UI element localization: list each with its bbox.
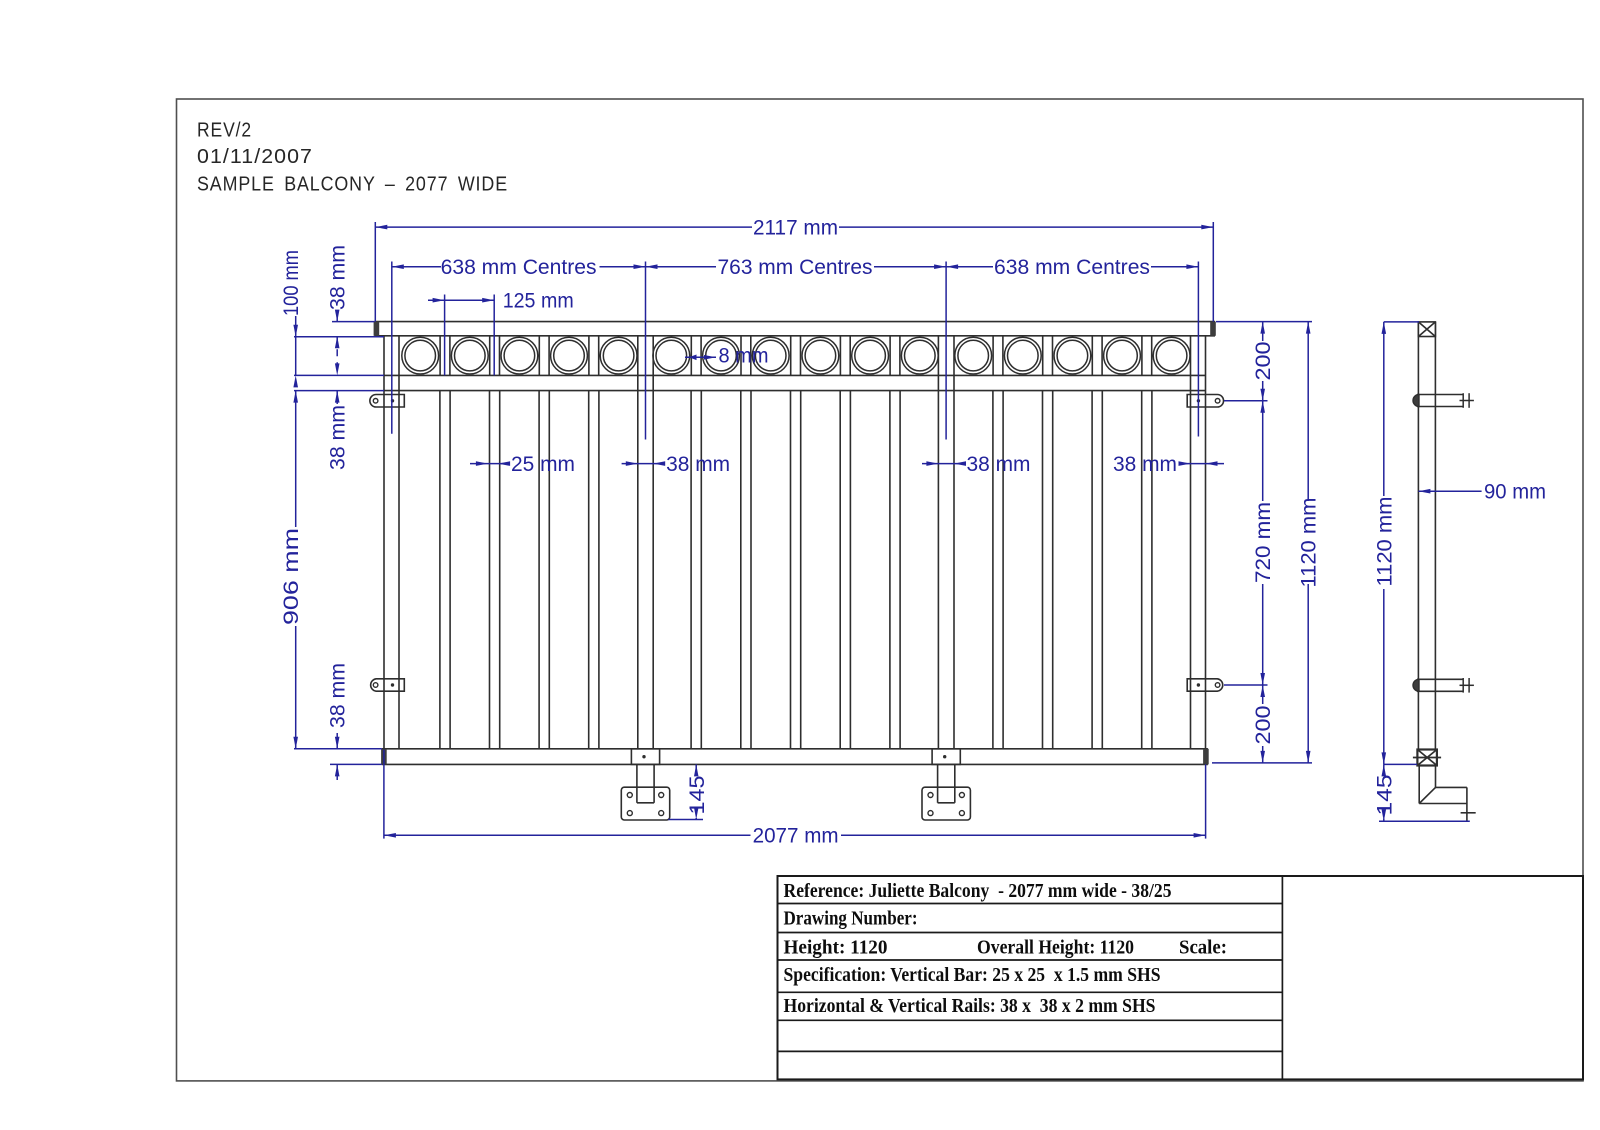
svg-text:Drawing Number:: Drawing Number: xyxy=(784,908,918,930)
svg-text:8 mm: 8 mm xyxy=(719,345,769,368)
svg-text:38 mm: 38 mm xyxy=(327,405,350,470)
svg-text:100 mm: 100 mm xyxy=(280,250,303,316)
svg-text:638 mm Centres: 638 mm Centres xyxy=(441,256,597,279)
svg-text:Specification: Vertical Bar: 2: Specification: Vertical Bar: 25 x 25 x 1… xyxy=(784,964,1161,986)
svg-text:90 mm: 90 mm xyxy=(1484,480,1546,503)
svg-text:763 mm Centres: 763 mm Centres xyxy=(718,256,873,279)
svg-text:01/11/2007: 01/11/2007 xyxy=(197,146,313,168)
svg-text:638 mm Centres: 638 mm Centres xyxy=(994,256,1150,279)
svg-text:38 mm: 38 mm xyxy=(1113,453,1177,476)
svg-text:125 mm: 125 mm xyxy=(503,289,574,312)
svg-text:Height: 1120: Height: 1120 xyxy=(784,937,888,959)
svg-text:Horizontal & Vertical Rails: 3: Horizontal & Vertical Rails: 38 x 38 x 2… xyxy=(784,995,1156,1017)
svg-text:38 mm: 38 mm xyxy=(327,245,350,310)
svg-text:2077 mm: 2077 mm xyxy=(753,825,839,848)
svg-text:200: 200 xyxy=(1252,342,1275,381)
svg-text:Overall Height: 1120: Overall Height: 1120 xyxy=(977,937,1134,959)
svg-text:1120 mm: 1120 mm xyxy=(1373,497,1396,587)
svg-text:1120 mm: 1120 mm xyxy=(1298,498,1321,588)
svg-text:2117 mm: 2117 mm xyxy=(753,216,838,239)
svg-text:25 mm: 25 mm xyxy=(511,453,575,476)
svg-text:720 mm: 720 mm xyxy=(1252,502,1275,583)
svg-text:Reference: Juliette Balcony -: Reference: Juliette Balcony - 2077 mm wi… xyxy=(784,880,1172,902)
svg-text:SAMPLE BALCONY – 2077 WIDE: SAMPLE BALCONY – 2077 WIDE xyxy=(197,174,508,196)
svg-text:38 mm: 38 mm xyxy=(967,453,1031,476)
svg-text:REV/2: REV/2 xyxy=(197,120,252,142)
svg-text:Scale:: Scale: xyxy=(1179,937,1227,959)
svg-text:38 mm: 38 mm xyxy=(666,453,730,476)
svg-text:38 mm: 38 mm xyxy=(327,663,350,728)
svg-text:200: 200 xyxy=(1252,706,1275,745)
svg-text:906 mm: 906 mm xyxy=(280,528,303,625)
